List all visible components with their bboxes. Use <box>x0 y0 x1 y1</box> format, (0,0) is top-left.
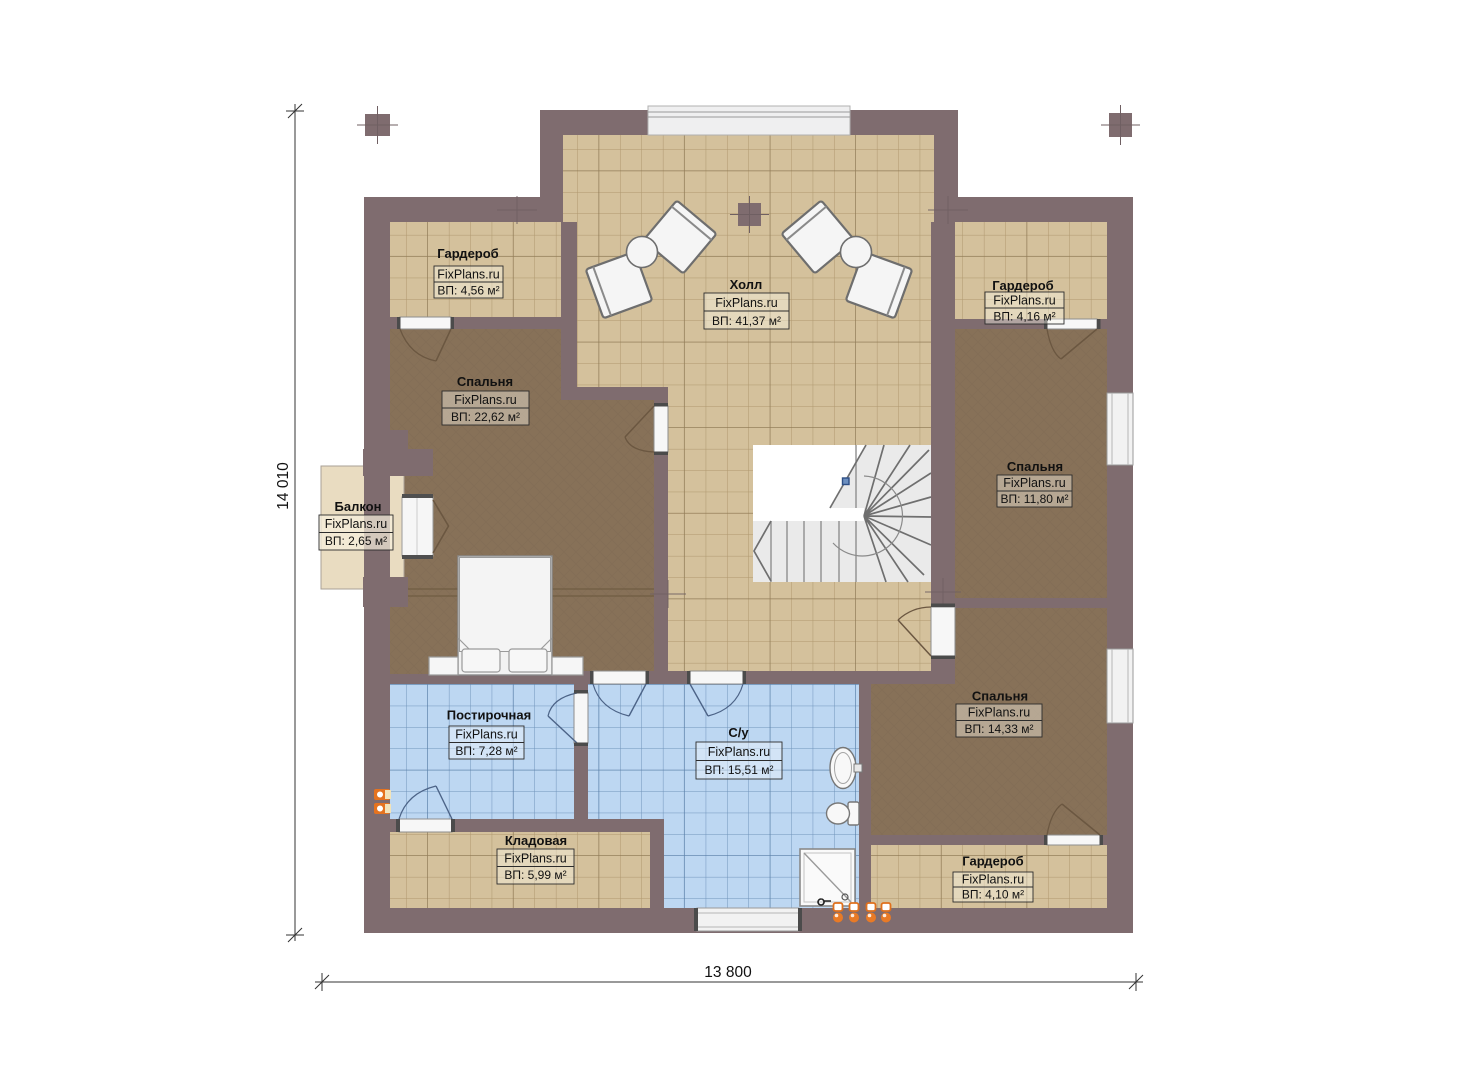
svg-text:FixPlans.ru: FixPlans.ru <box>325 517 388 531</box>
svg-text:FixPlans.ru: FixPlans.ru <box>454 393 517 407</box>
svg-text:Кладовая: Кладовая <box>505 833 567 848</box>
svg-text:FixPlans.ru: FixPlans.ru <box>455 728 518 742</box>
svg-text:FixPlans.ru: FixPlans.ru <box>993 294 1056 308</box>
svg-text:ВП: 4,10 м²: ВП: 4,10 м² <box>962 888 1024 902</box>
svg-text:С/у: С/у <box>728 725 749 740</box>
svg-text:ВП: 14,33 м²: ВП: 14,33 м² <box>965 722 1034 736</box>
svg-text:ВП: 7,28 м²: ВП: 7,28 м² <box>455 744 517 758</box>
svg-text:FixPlans.ru: FixPlans.ru <box>437 268 500 282</box>
svg-text:Постирочная: Постирочная <box>447 708 531 723</box>
svg-text:Балкон: Балкон <box>335 499 382 514</box>
svg-text:Спальня: Спальня <box>457 374 513 389</box>
svg-text:13 800: 13 800 <box>704 964 752 981</box>
svg-text:Холл: Холл <box>730 277 763 292</box>
svg-text:ВП: 5,99 м²: ВП: 5,99 м² <box>504 868 566 882</box>
svg-text:FixPlans.ru: FixPlans.ru <box>504 852 567 866</box>
svg-text:ВП: 11,80 м²: ВП: 11,80 м² <box>1000 492 1068 506</box>
svg-text:ВП: 22,62 м²: ВП: 22,62 м² <box>451 410 520 424</box>
svg-text:Гардероб: Гардероб <box>992 278 1053 293</box>
svg-text:ВП: 15,51 м²: ВП: 15,51 м² <box>705 763 774 777</box>
svg-text:ВП: 4,16 м²: ВП: 4,16 м² <box>993 310 1055 324</box>
svg-text:Гардероб: Гардероб <box>962 854 1023 869</box>
svg-text:Гардероб: Гардероб <box>437 246 498 261</box>
svg-text:ВП: 41,37 м²: ВП: 41,37 м² <box>712 314 781 328</box>
svg-text:14 010: 14 010 <box>275 462 292 510</box>
svg-text:FixPlans.ru: FixPlans.ru <box>715 296 778 310</box>
svg-text:ВП: 4,56 м²: ВП: 4,56 м² <box>437 284 499 298</box>
svg-text:FixPlans.ru: FixPlans.ru <box>968 706 1031 720</box>
svg-text:FixPlans.ru: FixPlans.ru <box>962 873 1025 887</box>
svg-text:FixPlans.ru: FixPlans.ru <box>708 745 771 759</box>
svg-text:FixPlans.ru: FixPlans.ru <box>1003 476 1066 490</box>
svg-text:ВП: 2,65 м²: ВП: 2,65 м² <box>325 534 387 548</box>
svg-text:Спальня: Спальня <box>972 689 1028 704</box>
svg-text:Спальня: Спальня <box>1007 459 1063 474</box>
